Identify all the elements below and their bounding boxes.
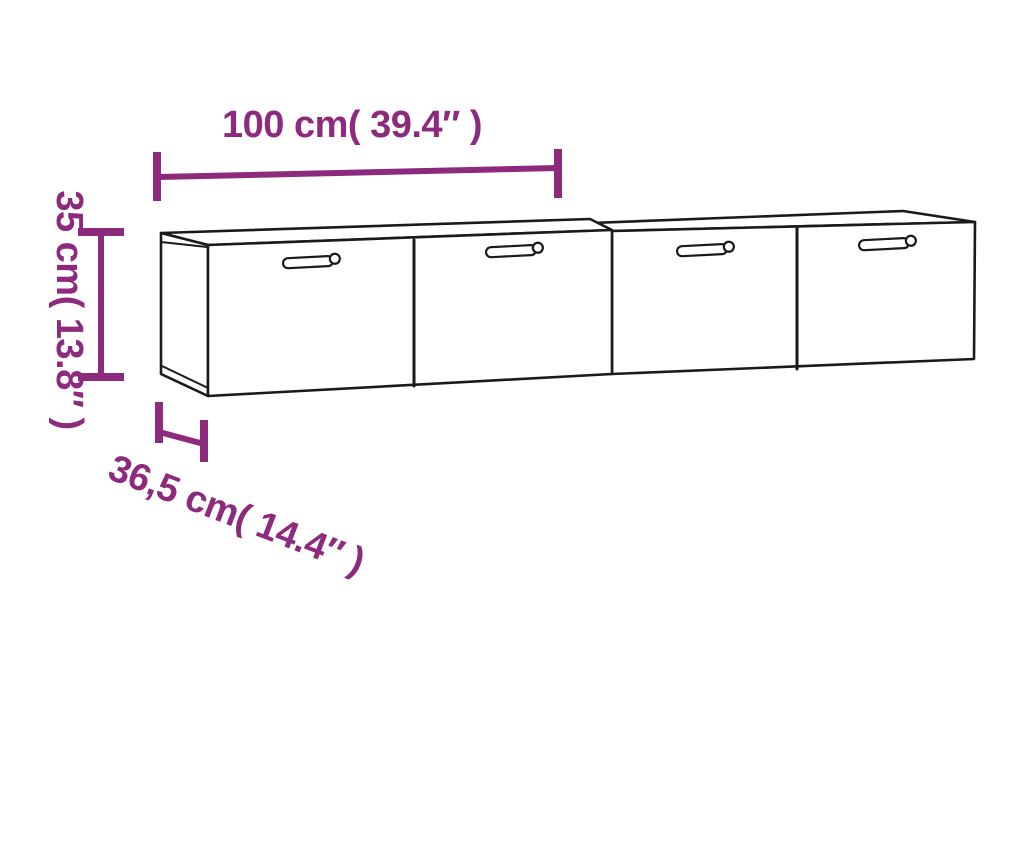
cabinet-left-side-panel xyxy=(161,233,208,396)
width-dimension: 100 cm( 39.4″ ) xyxy=(157,104,558,201)
product-dimension-diagram: 100 cm( 39.4″ ) 35 cm( 13.8″ ) 36,5 cm( … xyxy=(0,0,1024,860)
cabinet-left-front-face xyxy=(208,230,612,396)
handle-ring xyxy=(724,241,735,252)
handle-ring xyxy=(906,235,917,246)
depth-dimension-label: 36,5 cm( 14.4″ ) xyxy=(103,447,370,583)
handle-ring xyxy=(330,253,341,264)
handle-bar xyxy=(486,245,536,258)
height-dimension-label: 35 cm( 13.8″ ) xyxy=(48,190,90,429)
width-dimension-label: 100 cm( 39.4″ ) xyxy=(222,104,482,146)
depth-dimension-line xyxy=(159,432,204,444)
height-dimension: 35 cm( 13.8″ ) xyxy=(48,190,124,429)
width-dimension-line xyxy=(158,168,558,177)
diagram-canvas: 100 cm( 39.4″ ) 35 cm( 13.8″ ) 36,5 cm( … xyxy=(0,0,1024,860)
cabinet-left xyxy=(161,219,612,396)
cabinet-right xyxy=(565,211,975,374)
cabinet-right-front-face xyxy=(612,222,975,374)
handle-bar xyxy=(859,238,909,251)
handle-ring xyxy=(533,242,544,253)
handle-bar xyxy=(283,256,333,269)
depth-dimension: 36,5 cm( 14.4″ ) xyxy=(103,402,370,583)
handle-bar xyxy=(677,244,727,257)
